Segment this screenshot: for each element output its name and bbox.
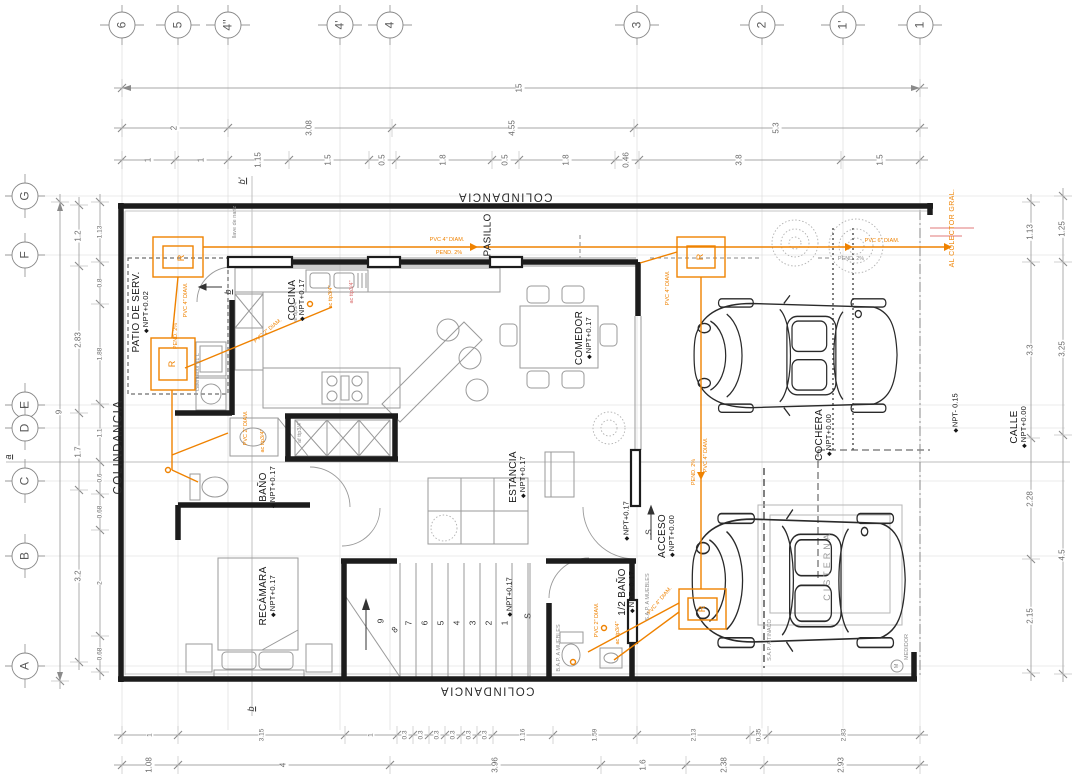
dim-label-left_total: 9: [56, 409, 65, 415]
room-npt-level: NPT+0.00: [668, 514, 677, 558]
room-npt-level: NPT+0.00: [825, 409, 834, 461]
dim-label-top_row3-7: 1.8: [563, 153, 572, 166]
dim-label-right_outer-1: 3.25: [1059, 340, 1068, 358]
dim-label-bottom_row1-5: 0.3: [433, 730, 440, 739]
dim-label-top_row3-9: 3.8: [736, 153, 745, 166]
registro-r-3: R: [696, 254, 706, 261]
pipe-pend2-patio: PEND. 2%: [173, 323, 179, 349]
grid-bubble-top-5: 3: [630, 22, 643, 29]
stair-number-4: 4: [452, 621, 461, 626]
dim-label-bottom_row2-5: 2.93: [838, 756, 847, 774]
pipe-al-colector: AL COLECTOR GRAL.: [949, 189, 957, 268]
dim-label-bottom_row1-9: 1.16: [519, 729, 526, 742]
dim-label-top_row2-3: 5.3: [773, 121, 782, 134]
room-label-calle: CALLENPT+0.00: [1009, 406, 1029, 448]
boundary-left: COLINDANCIA: [113, 399, 126, 494]
room-label-estancia: ESTANCIANPT+0.17: [508, 451, 528, 503]
dim-label-bottom_row1-8: 0.3: [481, 730, 488, 739]
dim-label-left_outer-2: 1.7: [75, 445, 84, 458]
acceso-up-s: S: [644, 529, 653, 535]
room-npt-level: NPT+0.17: [519, 451, 528, 503]
room-label-pasillo: PASILLO: [483, 213, 494, 256]
dim-label-right_inner-2: 2.28: [1027, 490, 1036, 508]
stair-number-2: 2: [484, 621, 493, 626]
dim-label-left_inner-1: 0.8: [96, 278, 103, 287]
equip-llave-de-nariz: llave de nariz: [232, 206, 238, 238]
room-npt-level: NPT+0.00: [1020, 406, 1029, 448]
dim-label-bottom_row2-3: 1.6: [639, 758, 648, 771]
pipe-pvc6: PVC 6" DIAM.: [865, 238, 900, 244]
pipe-ac-kitchen-2: ac ttp3/4": [349, 280, 355, 303]
stair-number-9: 9: [376, 619, 385, 624]
dim-label-bottom_row2-4: 2.38: [721, 756, 730, 774]
dim-label-bottom_row2-0: 1.08: [146, 756, 155, 774]
registro-r-4: R: [698, 606, 708, 613]
dim-label-top_row2-1: 3.08: [306, 119, 315, 137]
dim-label-top_row3-5: 1.8: [440, 153, 449, 166]
dim-label-bottom_row1-13: 2.83: [840, 729, 847, 742]
section-b-mid: b: [224, 289, 234, 294]
dim-label-top_total: 15: [516, 83, 525, 94]
room-label-comedor: COMEDORNPT+0.17: [574, 311, 594, 365]
stairs-up-s: S: [523, 613, 532, 619]
grid-bubble-top-4: 4: [383, 22, 396, 29]
floor-plan-canvas: 654''4'4321'1GFEDCBA1523.084.555.3111.15…: [0, 0, 1081, 775]
dim-label-right_inner-0: 1.13: [1027, 223, 1036, 241]
dim-label-left_inner-7: 0.68: [96, 648, 103, 661]
pipe-af-bath: af ttp3/4": [297, 421, 303, 443]
dim-label-bottom_row1-10: 1.59: [591, 729, 598, 742]
room-npt-level: NPT+0.17: [298, 279, 307, 321]
dim-label-bottom_row1-2: 1: [367, 733, 374, 737]
grid-bubble-top-2: 4'': [221, 19, 234, 30]
grid-bubble-left-2: E: [18, 401, 31, 409]
pipe-pvc2-bath: PVC 2" DIAM.: [243, 411, 249, 446]
pipe-ac-kitchen: ac ttp3/4": [328, 285, 334, 308]
grid-bubble-left-0: G: [18, 191, 31, 200]
dim-label-bottom_row1-0: 1: [146, 733, 153, 737]
boundary-top: COLINDANCIA: [457, 190, 552, 203]
dim-label-bottom_row1-11: 2.13: [690, 729, 697, 742]
grid-bubble-top-1: 5: [171, 22, 184, 29]
section-b-bottom: b: [247, 706, 257, 711]
equip-medidor-m: M: [894, 664, 900, 669]
equip-medidor: MEDIDOR: [904, 634, 910, 660]
dim-label-left_inner-0: 1.13: [96, 226, 103, 239]
dim-label-bottom_row1-6: 0.3: [449, 730, 456, 739]
equip-calentador: calentador 61 L: [195, 353, 201, 391]
grid-bubble-top-0: 6: [115, 22, 128, 29]
grid-bubble-left-1: F: [18, 251, 31, 258]
grid-bubble-left-5: B: [18, 552, 31, 560]
level-acceso: NPT+0.17: [623, 501, 632, 541]
pipe-pvc2-kitchen: PVC 2" DIAM.: [253, 318, 283, 345]
dim-label-bottom_row1-12: 0.35: [755, 729, 762, 742]
dim-label-right_outer-2: 4.5: [1059, 548, 1068, 561]
dim-label-left_inner-5: 0.68: [96, 506, 103, 519]
pipe-pvc2-halfbath: PVC 2" DIAM.: [594, 603, 600, 638]
grid-bubble-left-3: D: [18, 424, 31, 433]
pipe-sap-muebles: S.A.P. A MUEBLES: [645, 573, 651, 620]
dim-label-left_outer-0: 1.2: [75, 229, 84, 242]
section-a-left: a: [4, 454, 14, 459]
room-npt-level: NPT+0.17: [269, 566, 278, 625]
level-stairs: NPT+0.17: [506, 577, 515, 617]
room-label-acceso: ACCESONPT+0.00: [657, 514, 677, 558]
dim-label-right_inner-1: 3.3: [1027, 343, 1036, 356]
grid-bubble-top-8: 1: [913, 22, 926, 29]
grid-bubble-top-7: 1': [836, 21, 849, 30]
room-label-patio: PATIO DE SERV.NPT+0.02: [131, 271, 151, 352]
pipe-af-kitchen: af ttp3/4": [293, 300, 299, 322]
dim-label-top_row2-2: 4.55: [509, 119, 518, 137]
dim-label-left_inner-6: 2: [96, 581, 103, 585]
pipe-pend2-main: PEND. 2%: [436, 250, 462, 256]
room-label-bano: BAÑONPT+0.17: [258, 466, 278, 508]
equip-cisterna: CISTERNA: [823, 531, 833, 601]
labels-layer: 654''4'4321'1GFEDCBA1523.084.555.3111.15…: [0, 0, 1081, 775]
room-npt-level: NPT+0.17: [628, 568, 637, 615]
stair-number-3: 3: [468, 621, 477, 626]
grid-bubble-top-6: 2: [755, 22, 768, 29]
grid-bubble-left-4: C: [18, 477, 31, 486]
dim-label-top_row3-2: 1.15: [254, 151, 263, 169]
room-label-recamara: RECÁMARANPT+0.17: [258, 566, 278, 625]
dim-label-right_inner-3: 2.15: [1027, 607, 1036, 625]
pipe-pend2-vert: PEND. 2%: [691, 459, 697, 485]
grid-bubble-left-6: A: [18, 662, 31, 670]
stair-number-7: 7: [404, 621, 413, 626]
pipe-pvc4-vert: PVC 4" DIAM.: [703, 438, 709, 473]
dim-label-bottom_row2-1: 4: [280, 762, 289, 768]
pipe-ac-halfbath: ac ttp3/4": [615, 621, 621, 644]
dim-label-top_row3-4: 0.5: [378, 153, 387, 166]
pipe-pend2-right: PEND. 2%: [838, 256, 864, 262]
dim-label-left_inner-4: 0.6: [96, 473, 103, 482]
boundary-bottom: COLINDANCIA: [439, 684, 534, 697]
room-npt-level: NPT+0.17: [585, 311, 594, 365]
dim-label-left_outer-3: 3.2: [75, 569, 84, 582]
pipe-bap-muebles: B.A.P. A MUEBLES: [556, 624, 562, 671]
stair-number-5: 5: [436, 621, 445, 626]
dim-label-bottom_row2-2: 3.96: [491, 756, 500, 774]
room-npt-level: NPT+0.17: [269, 466, 278, 508]
room-npt-level: NPT+0.02: [142, 271, 151, 352]
dim-label-left_inner-2: 1.88: [96, 348, 103, 361]
dim-label-top_row3-6: 0.5: [501, 153, 510, 166]
dim-label-right_outer-0: 1.25: [1059, 220, 1068, 238]
room-name: PASILLO: [483, 213, 494, 256]
registro-r-2: R: [168, 361, 178, 368]
pipe-pvc4-patio: PVC 4" DIAM.: [183, 283, 189, 318]
section-b-prime-top: b': [238, 178, 248, 185]
pipe-sap-tinaco: S.A.P. A TINACO: [767, 619, 773, 661]
dim-label-top_row3-0: 1: [144, 157, 153, 163]
dim-label-bottom_row1-4: 0.3: [417, 730, 424, 739]
registro-r-1: R: [177, 255, 187, 262]
pipe-pvc4-main: PVC 4" DIAM.: [430, 237, 465, 243]
dim-label-top_row3-8: 0.46: [623, 151, 632, 169]
level-banqueta: NPT- 0.15: [952, 393, 961, 432]
room-label-cochera: COCHERANPT+0.00: [814, 409, 834, 461]
dim-label-left_outer-1: 2.83: [75, 331, 84, 349]
dim-label-left_inner-3: 1.1: [96, 428, 103, 437]
stair-number-1: 1: [500, 621, 509, 626]
dim-label-bottom_row1-1: 3.15: [258, 729, 265, 742]
dim-label-top_row3-3: 1.5: [325, 153, 334, 166]
dim-label-top_row3-1: 1: [197, 157, 206, 163]
dim-label-top_row2-0: 2: [171, 125, 180, 131]
room-label-medio_bano: 1/2 BAÑONPT+0.17: [617, 568, 637, 615]
dim-label-top_row3-10: 1.5: [876, 153, 885, 166]
grid-bubble-top-3: 4': [333, 21, 346, 30]
dim-label-bottom_row1-7: 0.3: [465, 730, 472, 739]
stair-number-6: 6: [420, 621, 429, 626]
pipe-ac-bath: ac ttp3/4": [260, 429, 266, 452]
pipe-pvc4-r3: PVC 4" DIAM.: [665, 271, 671, 306]
dim-label-bottom_row1-3: 0.3: [401, 730, 408, 739]
stair-number-8: 8: [390, 625, 400, 635]
